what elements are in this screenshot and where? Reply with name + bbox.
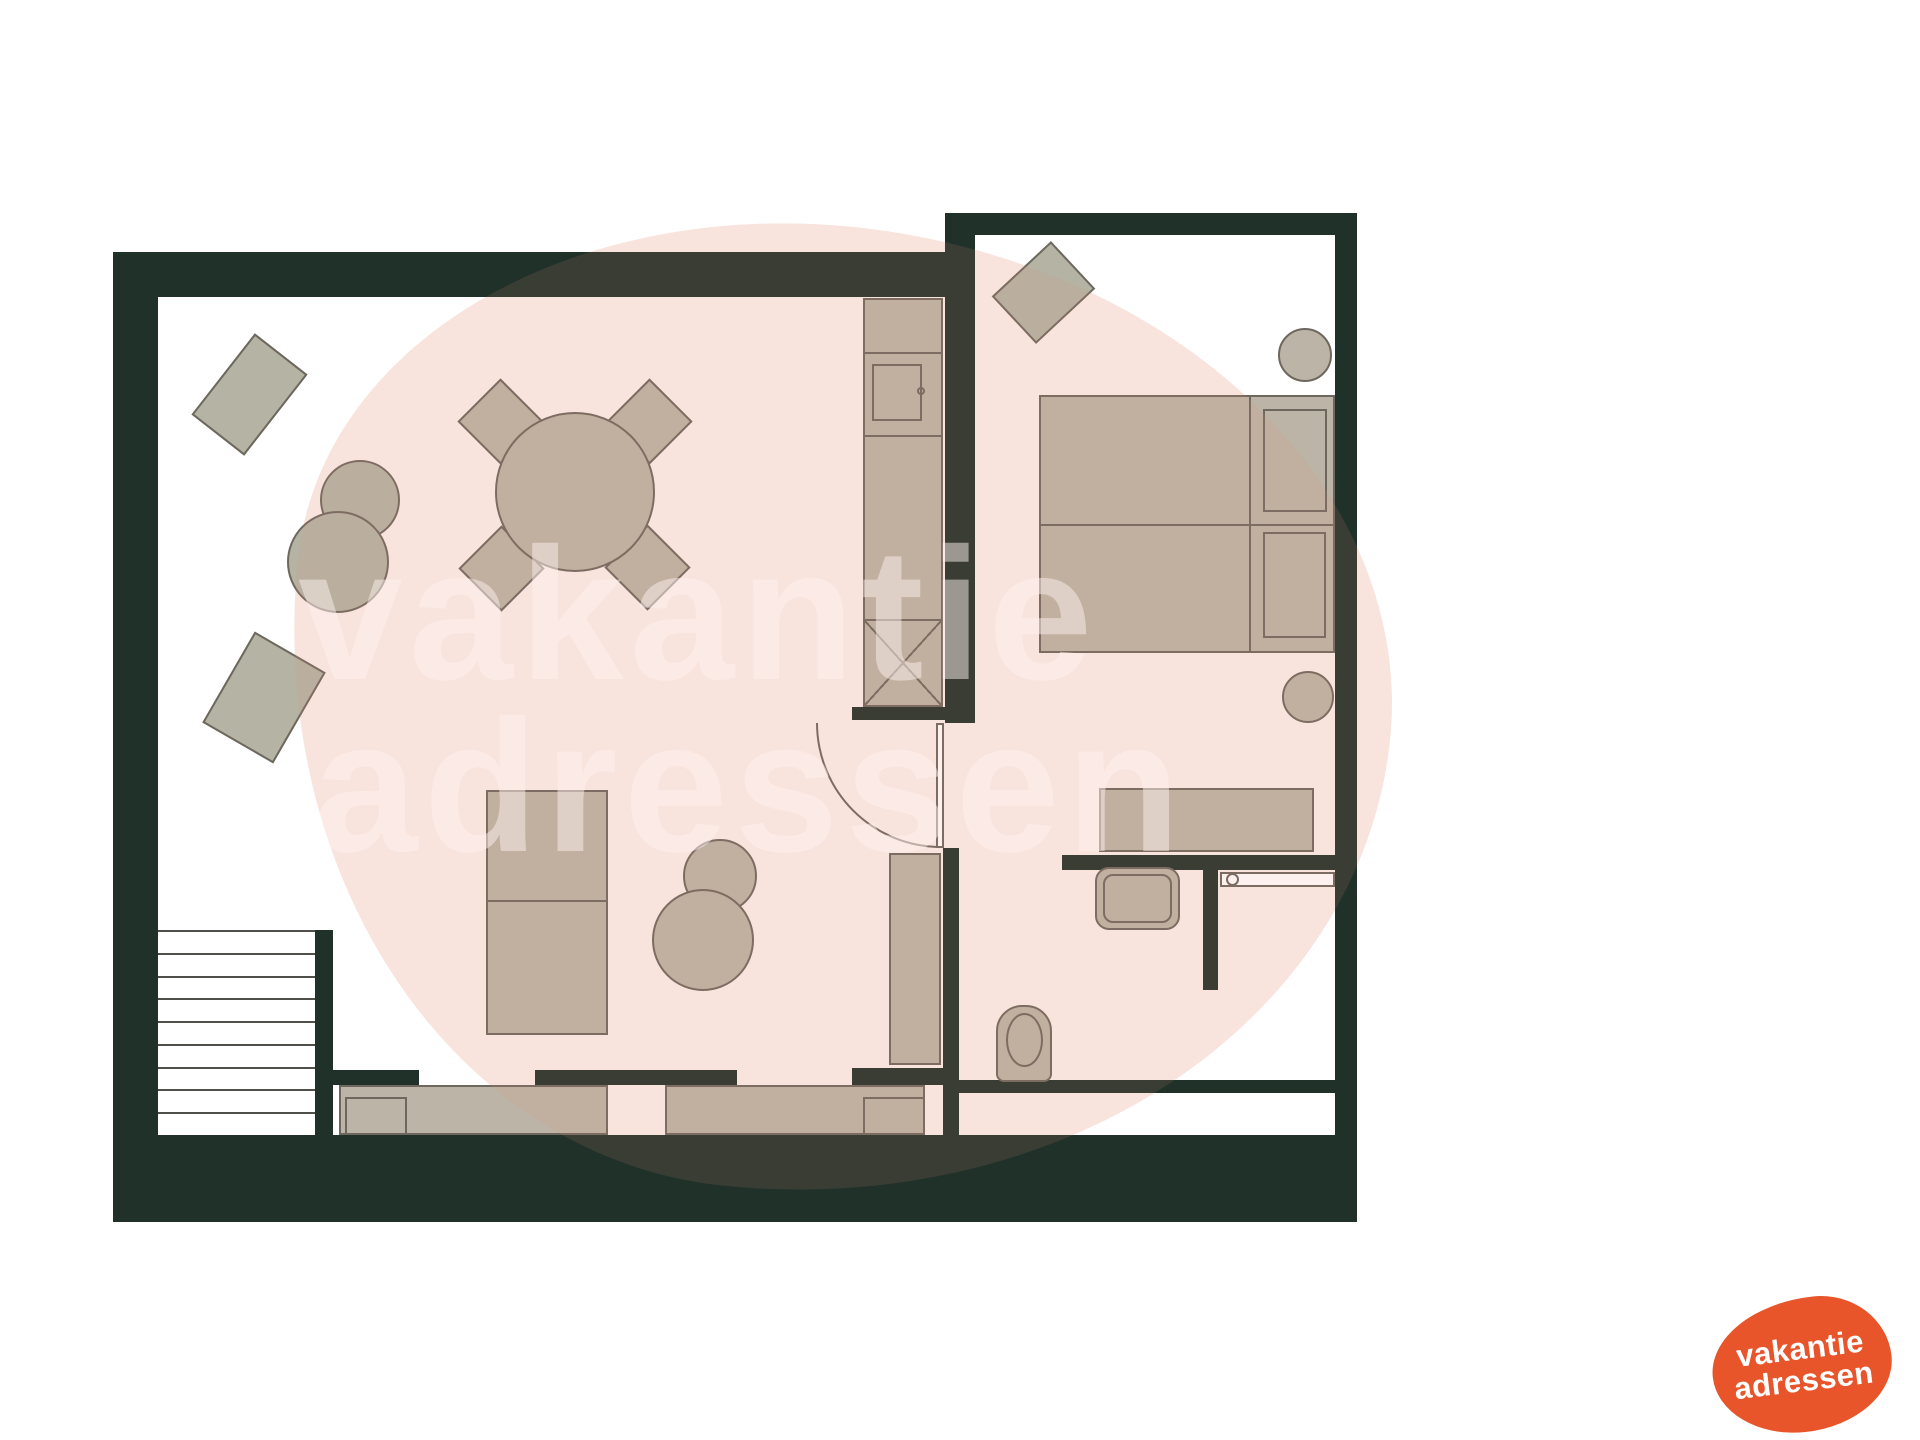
bedroom-stool-top [1278,328,1332,382]
wall-top-bedroom [948,213,1357,235]
logo-text: vakantie adressen [1705,1288,1900,1440]
stair-tread [158,998,315,1000]
stair-tread [158,930,315,932]
stair-tread [158,1089,315,1091]
rug-top-left [191,333,307,455]
stair-tread [158,976,315,978]
stair-tread [158,1112,315,1114]
wall-left [113,252,158,1135]
floorplan-canvas: vakantie adressen vakantie adressen [0,0,1920,1440]
stair-tread [158,953,315,955]
bench-armrest-left [345,1097,407,1135]
stair-tread [158,1044,315,1046]
stair-tread [158,1067,315,1069]
stair-tread [158,1021,315,1023]
staircase [158,930,315,1135]
wall-window-pier-left [326,1070,419,1085]
brand-logo: vakantie adressen [1712,1298,1892,1432]
wall-stairs-side [315,930,333,1135]
